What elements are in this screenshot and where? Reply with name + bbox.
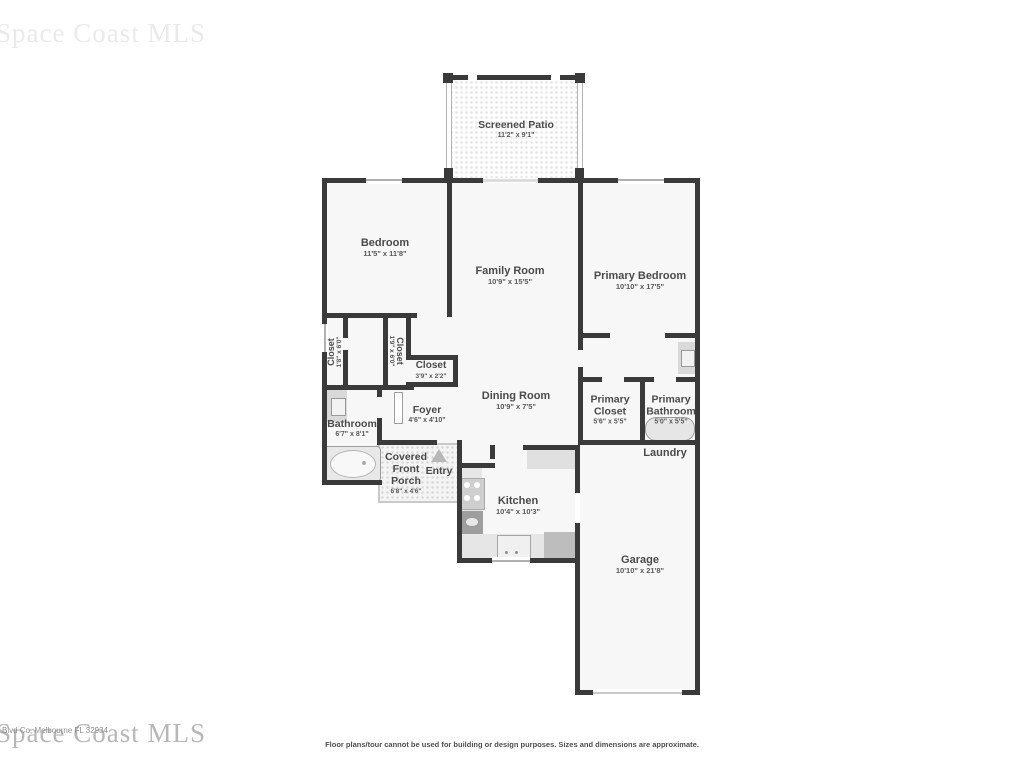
wall — [322, 480, 382, 485]
wall — [575, 445, 580, 493]
room-dims: 1'8" x 6'0" — [336, 337, 344, 368]
door-leaf — [394, 392, 403, 424]
patio-post — [575, 73, 585, 83]
room-name: Dining Room — [482, 390, 550, 402]
wall — [447, 183, 452, 317]
wall — [665, 333, 695, 338]
room-label-entry: Entry — [426, 465, 453, 477]
room-label-primary-bathroom: Primary Bathroom 5'0" x 5'5" — [643, 395, 699, 428]
room-label-laundry: Laundry — [643, 447, 686, 459]
room-name: Screened Patio — [478, 119, 554, 131]
patio-post — [443, 73, 453, 83]
wall — [343, 318, 348, 338]
bathroom-sink — [331, 398, 346, 416]
room-name: Garage — [616, 554, 664, 566]
room-label-garage: Garage 10'10" x 21'8" — [616, 554, 664, 576]
room-label-closet-hall: Closet 3'9" x 2'2" — [416, 360, 447, 382]
wall — [406, 318, 411, 360]
wall — [406, 382, 458, 387]
room-name: Closet — [326, 337, 336, 368]
room-label-primary-bedroom: Primary Bedroom 10'10" x 17'5" — [594, 270, 686, 292]
room-name: Kitchen — [496, 495, 540, 507]
patio-screen-wall — [577, 80, 583, 178]
room-name: Bathroom — [327, 418, 377, 430]
garage-door-line — [593, 692, 682, 694]
room-label-covered-front-porch: Covered Front Porch 6'8" x 4'6" — [383, 451, 429, 497]
wall — [580, 440, 700, 445]
room-name: Primary Bathroom — [643, 395, 699, 418]
wall — [580, 377, 602, 382]
room-dims: 10'10" x 17'5" — [594, 282, 686, 292]
room-name: Foyer — [408, 404, 445, 416]
room-label-family-room: Family Room 10'9" x 15'5" — [475, 265, 544, 287]
watermark-overlay-text: Blvd Co, Melbourne FL 32934 — [2, 726, 108, 735]
wall — [578, 183, 583, 350]
dishwasher-icon — [544, 532, 575, 559]
room-dims: 10'9" x 7'5" — [482, 402, 550, 412]
room-dims: 10'9" x 15'5" — [475, 277, 544, 287]
wall — [575, 523, 580, 695]
wall — [322, 385, 414, 390]
bathtub — [330, 450, 376, 478]
room-label-dining-room: Dining Room 10'9" x 7'5" — [482, 390, 550, 412]
bathtub-drain-icon — [362, 461, 366, 465]
wall — [490, 445, 495, 459]
room-name: Covered Front Porch — [383, 451, 429, 487]
room-label-screened-patio: Screened Patio 11'2" x 9'1" — [478, 119, 554, 141]
wall — [322, 313, 417, 318]
patio-screen-gap — [468, 75, 477, 80]
room-label-kitchen: Kitchen 10'4" x 10'3" — [496, 495, 540, 517]
kitchen-counter-peninsula — [527, 449, 577, 469]
wall — [695, 178, 700, 695]
room-label-foyer: Foyer 4'6" x 4'10" — [408, 404, 445, 426]
room-name: Closet — [416, 360, 447, 372]
sink-faucet-icon — [515, 551, 518, 554]
wall — [523, 445, 580, 450]
wall — [377, 385, 382, 397]
room-dims: 3'9" x 2'2" — [416, 372, 447, 382]
room-dims: 11'5" x 11'8" — [361, 249, 409, 259]
wall — [377, 440, 437, 445]
room-name: Closet — [395, 336, 405, 367]
room-dims: 10'10" x 21'8" — [616, 566, 664, 576]
sliding-door — [483, 179, 538, 182]
sink-faucet-icon — [505, 551, 508, 554]
floor-plan: Space Coast MLS — [0, 0, 1024, 768]
room-dims: 4'6" x 4'10" — [408, 416, 445, 426]
room-name: Primary Closet — [585, 395, 635, 418]
wall — [580, 333, 610, 338]
room-label-closet-middle: Closet 1'9" x 6'0" — [387, 336, 405, 367]
window-line — [366, 179, 402, 181]
stove-burner-icon — [474, 482, 480, 488]
entry-arrow-icon — [431, 449, 447, 462]
room-dims: 11'2" x 9'1" — [478, 131, 554, 141]
room-label-bedroom: Bedroom 11'5" x 11'8" — [361, 237, 409, 259]
window-line — [492, 560, 530, 562]
room-dims: 6'7" x 8'1" — [327, 430, 377, 440]
room-name: Primary Bedroom — [594, 270, 686, 282]
watermark-top: Space Coast MLS — [0, 18, 206, 49]
wall — [445, 75, 585, 80]
disclaimer-text: Floor plans/tour cannot be used for buil… — [0, 740, 1024, 749]
room-label-closet-left: Closet 1'8" x 6'0" — [326, 337, 344, 368]
room-name: Laundry — [643, 447, 686, 459]
wall — [676, 377, 700, 382]
room-dims: 6'8" x 4'6" — [383, 487, 429, 497]
stove-burner-icon — [464, 482, 470, 488]
room-dims: 10'4" x 10'3" — [496, 507, 540, 517]
patio-screen-wall — [446, 80, 452, 178]
wall — [624, 377, 654, 382]
room-dims: 5'6" x 5'5" — [585, 418, 635, 428]
primary-sink — [681, 350, 695, 367]
window-line — [618, 179, 664, 181]
wall — [322, 178, 483, 183]
stove-burner-icon — [464, 495, 470, 501]
room-name: Entry — [426, 465, 453, 477]
oven-handle-icon — [466, 518, 478, 526]
room-label-bathroom: Bathroom 6'7" x 8'1" — [327, 418, 377, 440]
stove-burner-icon — [474, 495, 480, 501]
room-dims: 5'0" x 5'5" — [643, 418, 699, 428]
room-dims: 1'9" x 6'0" — [387, 336, 395, 367]
room-name: Bedroom — [361, 237, 409, 249]
room-label-primary-closet: Primary Closet 5'6" x 5'5" — [585, 395, 635, 428]
wall — [457, 463, 495, 468]
patio-screen-gap — [551, 75, 560, 80]
room-name: Family Room — [475, 265, 544, 277]
